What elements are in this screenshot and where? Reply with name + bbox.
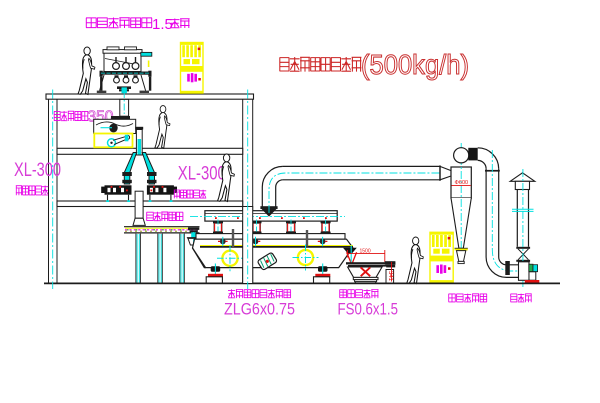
svg-text:(500kg/h): (500kg/h) <box>361 49 469 80</box>
svg-text:XL-300: XL-300 <box>178 163 226 185</box>
svg-text:1.5: 1.5 <box>152 16 173 33</box>
svg-text:ZLG6x0.75: ZLG6x0.75 <box>224 301 295 319</box>
svg-text:XL-300: XL-300 <box>14 159 61 181</box>
svg-text:341: 341 <box>387 271 393 282</box>
svg-text:Φ600: Φ600 <box>455 180 469 186</box>
svg-text:FS0.6x1.5: FS0.6x1.5 <box>338 301 399 319</box>
